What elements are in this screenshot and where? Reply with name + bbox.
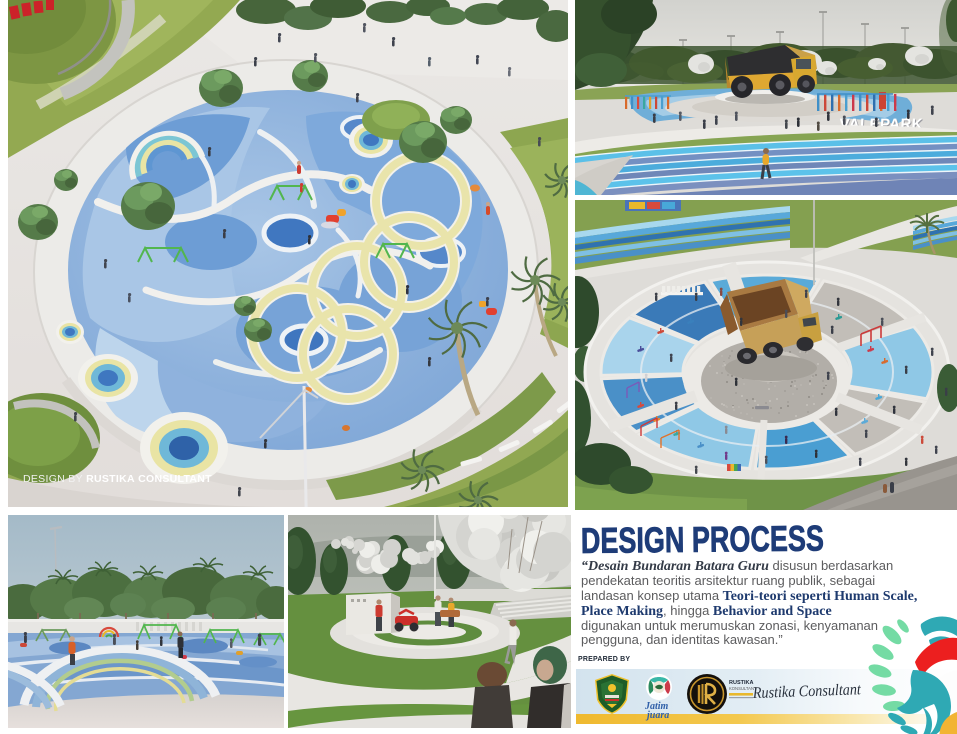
svg-text:Rustika Consultant: Rustika Consultant xyxy=(752,681,862,702)
svg-text:DESIGN PROCESS: DESIGN PROCESS xyxy=(581,520,824,561)
svg-text:juara: juara xyxy=(645,710,669,721)
